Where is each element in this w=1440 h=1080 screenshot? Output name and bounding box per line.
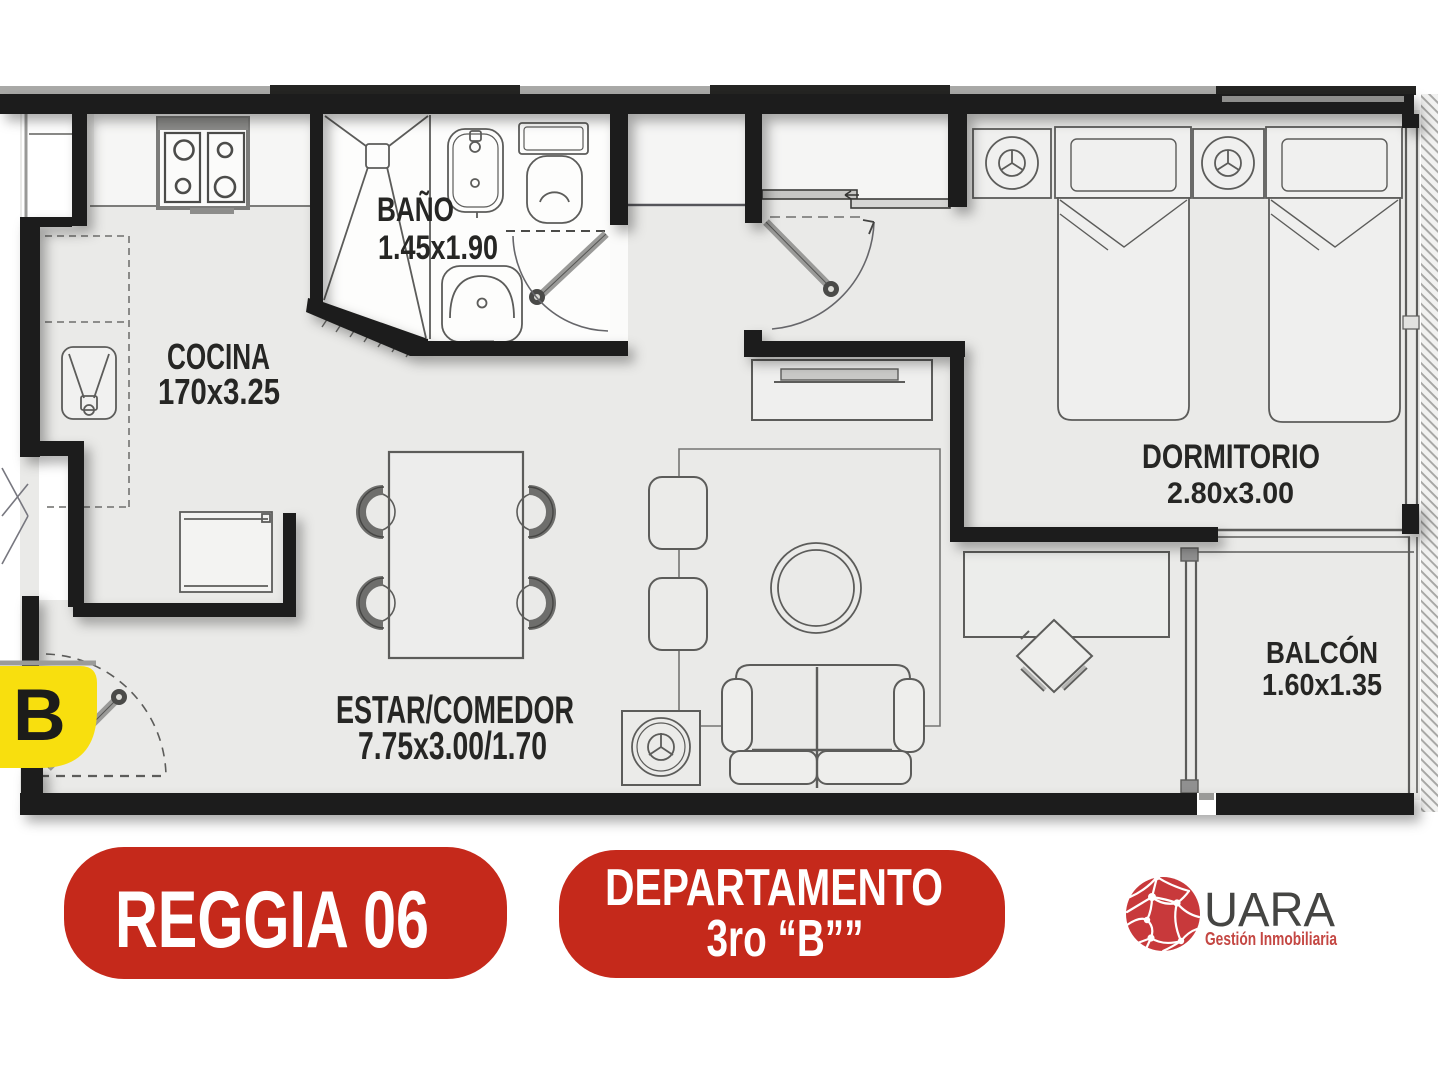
svg-text:DORMITORIO: DORMITORIO [1142,438,1320,476]
svg-text:1.60x1.35: 1.60x1.35 [1262,667,1382,702]
svg-text:3ro “B””: 3ro “B”” [707,910,864,968]
svg-text:7.75x3.00/1.70: 7.75x3.00/1.70 [358,725,547,768]
svg-text:B: B [13,675,66,756]
svg-text:BALCÓN: BALCÓN [1266,634,1378,670]
svg-text:BAÑO: BAÑO [377,191,454,229]
svg-text:1.45x1.90: 1.45x1.90 [378,229,498,267]
svg-text:170x3.25: 170x3.25 [158,371,280,412]
svg-text:2.80x3.00: 2.80x3.00 [1167,477,1294,510]
svg-text:REGGIA 06: REGGIA 06 [115,875,429,965]
svg-text:Gestión Inmobiliaria: Gestión Inmobiliaria [1205,929,1338,949]
svg-text:DEPARTAMENTO: DEPARTAMENTO [605,859,943,917]
